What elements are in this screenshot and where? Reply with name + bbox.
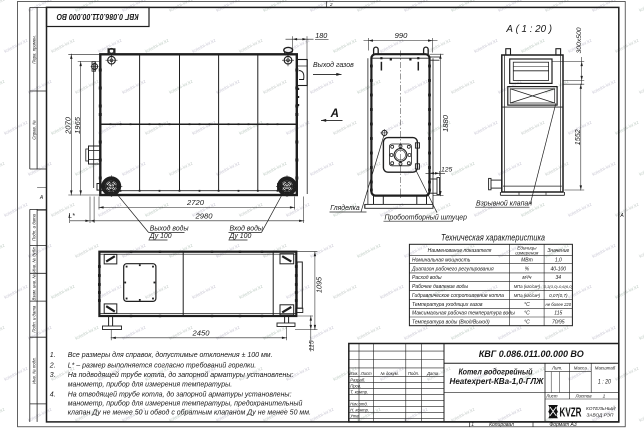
svg-text:Диапазон рабочего регулировани: Диапазон рабочего регулирования (411, 267, 494, 273)
svg-text:115: 115 (554, 311, 562, 317)
svg-text:0,07(0,7): 0,07(0,7) (549, 293, 568, 298)
svg-text:Утв.: Утв. (350, 414, 360, 419)
svg-text:№ докум.: № докум. (380, 371, 398, 376)
svg-text:Значение: Значение (547, 248, 569, 254)
svg-text:КОТЕЛЬНЫЙ: КОТЕЛЬНЫЙ (586, 404, 616, 411)
svg-text:Пробоотборный штуцер: Пробоотборный штуцер (385, 213, 468, 221)
svg-text:Гляделка: Гляделка (330, 204, 360, 212)
svg-text:Расход воды: Расход воды (412, 275, 442, 281)
svg-text:125: 125 (441, 167, 453, 174)
svg-text:На отводящей трубе котла, до з: На отводящей трубе котла, до запорной ар… (68, 390, 292, 398)
svg-text:ЗАВОД РЭП: ЗАВОД РЭП (587, 412, 614, 417)
svg-text:Лит.: Лит. (551, 366, 562, 371)
svg-text:Н. контр.: Н. контр. (350, 408, 369, 413)
svg-text:1: 1 (471, 422, 474, 428)
svg-text:А: А (39, 195, 44, 201)
svg-text:40-100: 40-100 (551, 267, 567, 273)
svg-text:Подп. и дата: Подп. и дата (31, 213, 36, 241)
svg-text:Ду 100: Ду 100 (229, 233, 252, 240)
svg-text:1552: 1552 (573, 129, 582, 145)
svg-text:Разраб.: Разраб. (350, 378, 365, 383)
svg-text:2.: 2. (49, 362, 56, 369)
svg-text:3.: 3. (50, 372, 56, 379)
svg-text:Температура воды (Вход/Выход): Температура воды (Вход/Выход) (412, 319, 490, 325)
svg-text:м³/ч: м³/ч (522, 275, 531, 281)
svg-text:Техническая характеристика: Техническая характеристика (441, 233, 545, 243)
svg-text:измерения: измерения (515, 250, 539, 255)
svg-text:Взрывной клапан: Взрывной клапан (476, 199, 532, 207)
svg-text:Перв. примен.: Перв. примен. (31, 35, 36, 64)
svg-text:Пров.: Пров. (350, 384, 361, 389)
svg-text:34: 34 (556, 275, 562, 281)
svg-text:%: % (525, 267, 530, 273)
svg-text:клапан Ду не менее 50 и обвод: клапан Ду не менее 50 и обвод с обратным… (68, 408, 311, 416)
svg-text:Ду 100: Ду 100 (149, 233, 172, 240)
svg-text:Подп. и дата: Подп. и дата (31, 305, 36, 333)
svg-text:КВГ 0.086.011.00.000 ВО: КВГ 0.086.011.00.000 ВО (479, 349, 584, 359)
svg-text:Температура уходящих газов: Температура уходящих газов (412, 302, 483, 308)
svg-text:Рабочее давление воды: Рабочее давление воды (412, 284, 468, 290)
svg-text:А ( 1 : 20 ): А ( 1 : 20 ) (505, 24, 552, 35)
svg-text:KVZR: KVZR (560, 406, 582, 420)
svg-text:Дата: Дата (426, 371, 439, 376)
svg-text:2980: 2980 (195, 211, 214, 220)
svg-text:Все размеры для справок, допус: Все размеры для справок, допустимые откл… (68, 351, 273, 359)
svg-text:Гидравлическое сопротивление к: Гидравлическое сопротивление котла (412, 293, 504, 299)
svg-text:КВГ 0.086.011.00.000 ВО: КВГ 0.086.011.00.000 ВО (56, 12, 139, 21)
svg-text:Выход газов: Выход газов (313, 61, 354, 69)
svg-text:Heatexpert-КВа-1,0-ГЛЖ: Heatexpert-КВа-1,0-ГЛЖ (450, 376, 545, 386)
svg-text:Лист: Лист (360, 371, 372, 376)
svg-text:Листов: Листов (575, 394, 593, 399)
svg-text:Формат А3: Формат А3 (549, 422, 577, 428)
svg-text:115: 115 (309, 340, 316, 351)
svg-text:Подп.: Подп. (408, 371, 419, 376)
svg-text:Масса: Масса (574, 366, 588, 371)
svg-text:1,0: 1,0 (555, 257, 562, 263)
svg-text:300х500: 300х500 (576, 27, 583, 53)
svg-text:Наименование показателя: Наименование показателя (428, 248, 492, 254)
svg-text:не более 220: не более 220 (546, 302, 572, 307)
svg-text:2450: 2450 (192, 329, 211, 338)
svg-text:Т. контр.: Т. контр. (350, 390, 368, 395)
svg-text:МПа (кгс/см²): МПа (кгс/см²) (514, 284, 541, 289)
svg-text:А: А (330, 108, 339, 120)
svg-text:1: 1 (603, 394, 606, 400)
svg-text:2070: 2070 (64, 116, 73, 135)
svg-text:манометр, прибор для измерения: манометр, прибор для измерения температу… (68, 399, 303, 407)
svg-text:2720: 2720 (186, 198, 205, 207)
svg-text:70/95: 70/95 (552, 319, 565, 325)
svg-text:0,3(3,0)-0,6(6,0): 0,3(3,0)-0,6(6,0) (544, 284, 574, 289)
svg-text:МПа (кгс/см²): МПа (кгс/см²) (514, 293, 541, 298)
svg-text:Максимальная рабочая температу: Максимальная рабочая температура воды (412, 311, 515, 317)
svg-text:Выход воды: Выход воды (150, 225, 189, 233)
svg-text:1880: 1880 (441, 114, 450, 132)
svg-text:Вход воды: Вход воды (230, 225, 263, 233)
svg-text:Изм.: Изм. (349, 371, 358, 376)
svg-text:МВт: МВт (521, 257, 533, 263)
svg-text:Номинальная мощность: Номинальная мощность (412, 257, 471, 263)
svg-text:1095: 1095 (315, 276, 324, 293)
svg-text:L*: L* (68, 213, 75, 220)
svg-text:Копировал: Копировал (489, 422, 514, 428)
svg-text:°С: °С (524, 302, 530, 308)
svg-text:Масштаб: Масштаб (595, 366, 616, 371)
svg-text:1.: 1. (50, 352, 56, 359)
svg-text:1965: 1965 (73, 116, 82, 134)
svg-text:Взам. инв. №: Взам. инв. № (31, 274, 36, 301)
svg-text:°С: °С (524, 311, 530, 317)
svg-text:180: 180 (315, 31, 327, 40)
svg-text:2: 2 (329, 2, 333, 7)
svg-text:°С: °С (524, 319, 530, 325)
svg-text:Нач.отд.: Нач.отд. (350, 402, 368, 407)
svg-text:Инв. № дубл.: Инв. № дубл. (31, 246, 36, 272)
svg-text:Лист: Лист (545, 394, 558, 399)
svg-text:1 : 20: 1 : 20 (598, 379, 611, 386)
svg-text:Инв. № подл.: Инв. № подл. (31, 357, 36, 384)
svg-text:На подводящей трубе котла, до: На подводящей трубе котла, до запорной а… (68, 371, 294, 379)
svg-text:L* – размер выполняется соглас: L* – размер выполняется согласно требова… (68, 361, 257, 369)
svg-text:4.: 4. (50, 391, 56, 398)
svg-text:А: А (619, 213, 624, 219)
svg-text:990: 990 (395, 31, 408, 40)
svg-text:Справ. №: Справ. № (31, 120, 36, 140)
svg-text:манометр, прибор для измерения: манометр, прибор для измерения температу… (68, 380, 233, 388)
